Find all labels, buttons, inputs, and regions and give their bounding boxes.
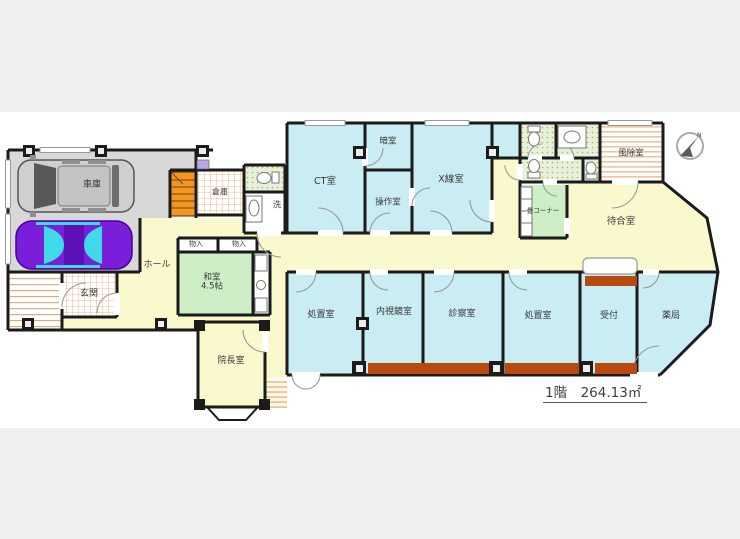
room-label-endoscopy: 内視鏡室 bbox=[376, 308, 412, 318]
room-label-waiting: 待合室 bbox=[607, 217, 636, 227]
suv-car-icon bbox=[18, 155, 134, 217]
room-label-windbreak: 風除室 bbox=[618, 149, 644, 158]
room-label-closet-1: 物入 bbox=[189, 241, 203, 249]
room-label-pharmacy: 薬局 bbox=[662, 312, 680, 322]
room-label-control: 操作室 bbox=[375, 198, 401, 207]
room-label-storage: 倉庫 bbox=[212, 189, 228, 198]
sports-car-icon bbox=[16, 221, 132, 269]
room-label-japanese-room: 和室4.5帖 bbox=[201, 274, 223, 293]
toilet-icon bbox=[528, 126, 540, 146]
vanity-sink bbox=[558, 126, 586, 148]
toilet-icon bbox=[257, 172, 279, 184]
entrance-double-door bbox=[608, 121, 652, 126]
room-label-ct: CT室 bbox=[314, 177, 336, 187]
room-label-tatami-corner: 畳コーナー bbox=[527, 207, 560, 214]
stairs-icon bbox=[171, 172, 195, 216]
floor-plan-drawing bbox=[0, 0, 740, 539]
room-label-treatment-2: 処置室 bbox=[524, 312, 551, 322]
floor-plan-screenshot: { "floor_summary": { "label": "1階 264.13… bbox=[0, 0, 740, 539]
garage-door-2 bbox=[6, 214, 11, 264]
porch-floor bbox=[10, 274, 62, 330]
room-label-xray: X線室 bbox=[438, 175, 464, 185]
washbasin bbox=[246, 196, 262, 222]
garage-door-1 bbox=[6, 160, 11, 208]
room-label-garage: 車庫 bbox=[83, 181, 101, 191]
window-marker bbox=[197, 160, 209, 169]
room-label-reception: 受付 bbox=[600, 312, 618, 322]
room-label-entrance: 玄関 bbox=[80, 290, 98, 300]
reception-counter bbox=[583, 258, 637, 274]
room-label-hall: ホール bbox=[143, 261, 170, 271]
toilet-icon bbox=[586, 162, 597, 179]
room-label-closet-2: 物入 bbox=[232, 241, 246, 249]
room-label-laundry: 洗 bbox=[273, 201, 282, 210]
room-label-dark-room: 暗室 bbox=[379, 137, 396, 146]
room-label-exam: 診察室 bbox=[448, 310, 475, 320]
floor-area-label: 1階 264.13㎡ bbox=[543, 381, 647, 403]
north-label: N bbox=[697, 132, 702, 139]
room-label-directors-office: 院長室 bbox=[217, 357, 244, 367]
room-label-treatment-1: 処置室 bbox=[307, 311, 334, 321]
japanese-room-cabinet bbox=[255, 255, 267, 312]
toilet-icon bbox=[528, 160, 540, 179]
